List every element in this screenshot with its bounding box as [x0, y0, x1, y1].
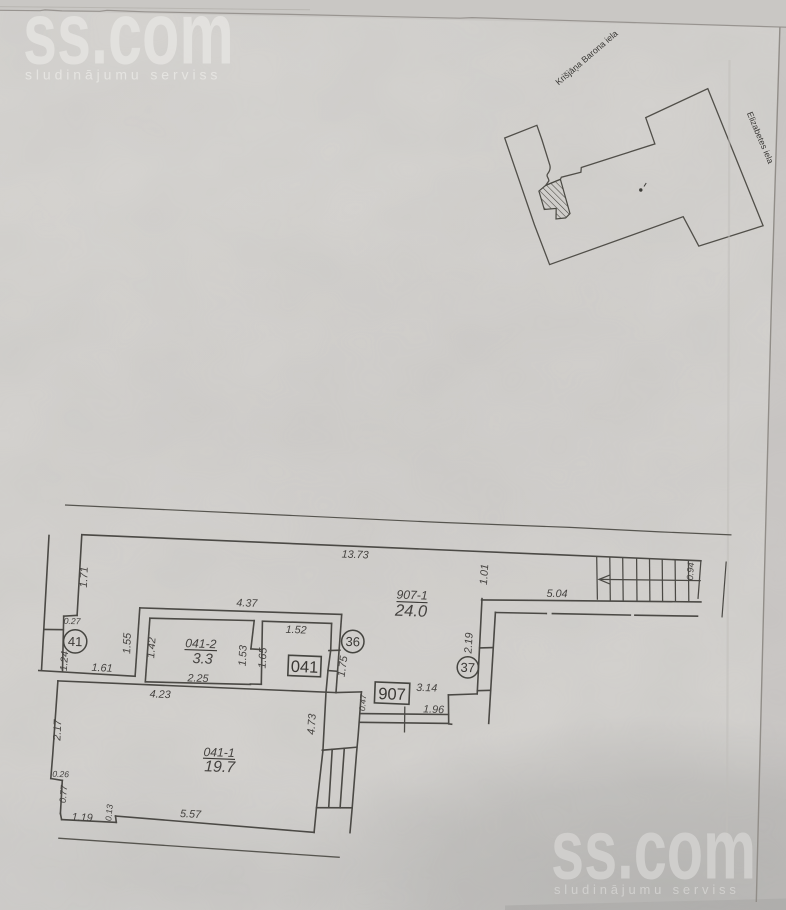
svg-text:sludinājumu serviss: sludinājumu serviss	[25, 67, 221, 83]
svg-text:19.7: 19.7	[204, 758, 237, 776]
svg-text:5.57: 5.57	[180, 808, 203, 821]
svg-text:0.26: 0.26	[52, 769, 69, 780]
svg-text:4.37: 4.37	[236, 597, 258, 610]
svg-text:1.01: 1.01	[478, 564, 491, 586]
svg-text:sludinājumu serviss: sludinājumu serviss	[554, 882, 740, 897]
svg-text:1.19: 1.19	[71, 811, 93, 824]
svg-text:4.23: 4.23	[149, 688, 171, 701]
svg-text:041: 041	[290, 658, 318, 677]
svg-text:1.71: 1.71	[78, 566, 91, 587]
svg-text:0.94: 0.94	[685, 562, 696, 580]
svg-text:1.24: 1.24	[59, 651, 71, 672]
svg-text:24.0: 24.0	[394, 602, 429, 621]
svg-text:13.73: 13.73	[341, 548, 368, 561]
svg-text:907-1: 907-1	[396, 588, 428, 603]
svg-text:4.73: 4.73	[305, 713, 318, 735]
svg-text:1.96: 1.96	[423, 703, 444, 716]
svg-text:0.27: 0.27	[64, 616, 82, 627]
svg-text:0.13: 0.13	[103, 804, 114, 822]
svg-text:907: 907	[378, 685, 406, 704]
svg-text:1.55: 1.55	[121, 632, 134, 654]
svg-text:0.77: 0.77	[58, 784, 70, 804]
svg-text:37: 37	[460, 660, 475, 675]
svg-text:3.3: 3.3	[192, 651, 213, 668]
svg-text:3.14: 3.14	[416, 682, 437, 695]
svg-text:1.61: 1.61	[91, 662, 113, 675]
svg-text:1.65: 1.65	[257, 646, 270, 669]
svg-text:41: 41	[68, 634, 83, 649]
svg-text:2.19: 2.19	[463, 632, 476, 655]
svg-text:1.53: 1.53	[237, 645, 250, 667]
svg-text:36: 36	[345, 634, 360, 649]
svg-text:1.42: 1.42	[145, 637, 158, 659]
svg-text:2.17: 2.17	[51, 718, 64, 741]
svg-text:5.04: 5.04	[546, 588, 567, 600]
svg-text:0.47: 0.47	[357, 693, 368, 712]
svg-text:1.52: 1.52	[285, 624, 306, 637]
svg-text:041-2: 041-2	[185, 636, 217, 651]
svg-text:2.25: 2.25	[186, 672, 209, 685]
